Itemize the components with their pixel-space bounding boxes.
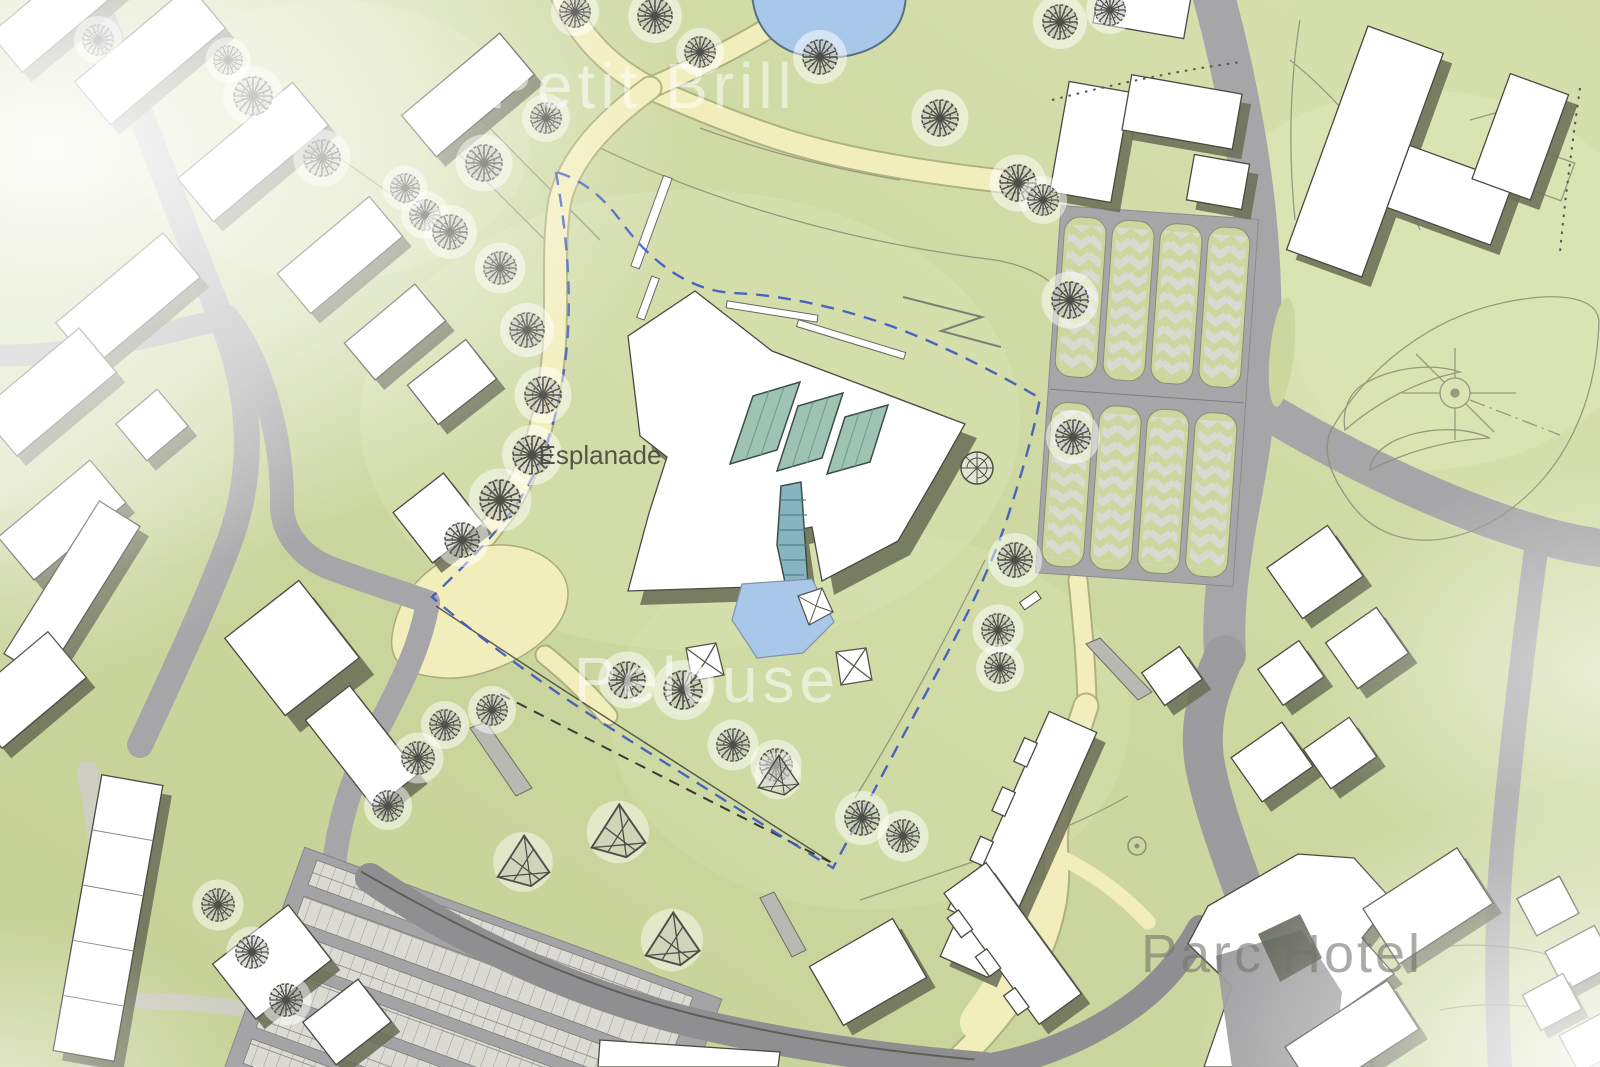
site-plan-canvas: Petit Brill Esplanade Pelouse Parc Hotel bbox=[0, 0, 1600, 1067]
label-esplanade: Esplanade bbox=[539, 440, 662, 470]
site-plan: Petit Brill Esplanade Pelouse Parc Hotel bbox=[0, 0, 1600, 1067]
label-district: Petit Brill bbox=[489, 50, 797, 122]
label-lawn: Pelouse bbox=[574, 644, 840, 716]
label-hotel: Parc Hotel bbox=[1141, 924, 1423, 984]
vignette-fades bbox=[0, 0, 1600, 1067]
